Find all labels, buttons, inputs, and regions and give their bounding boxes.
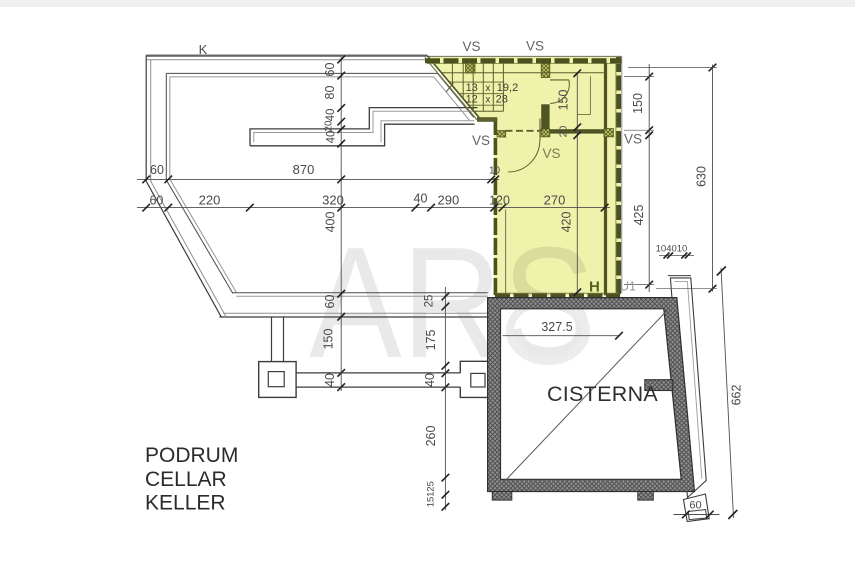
svg-text:25: 25 xyxy=(424,295,436,308)
svg-text:60: 60 xyxy=(323,295,337,309)
svg-text:220: 220 xyxy=(199,192,221,207)
svg-text:80: 80 xyxy=(323,86,337,100)
svg-text:150: 150 xyxy=(631,93,645,114)
svg-text:630: 630 xyxy=(695,166,709,187)
svg-text:60: 60 xyxy=(323,63,337,77)
svg-text:15: 15 xyxy=(426,497,437,508)
svg-text:VS: VS xyxy=(542,146,560,161)
svg-text:40: 40 xyxy=(423,373,437,387)
svg-text:175: 175 xyxy=(424,330,438,351)
svg-text:VS: VS xyxy=(472,133,490,148)
svg-text:400: 400 xyxy=(324,212,338,233)
svg-text:40: 40 xyxy=(323,373,337,387)
svg-text:870: 870 xyxy=(293,162,315,177)
svg-text:KELLER: KELLER xyxy=(145,492,226,515)
svg-text:H: H xyxy=(589,279,600,296)
svg-text:260: 260 xyxy=(424,426,438,447)
svg-text:U1: U1 xyxy=(620,280,636,294)
svg-text:28: 28 xyxy=(496,94,508,106)
svg-text:150: 150 xyxy=(557,90,571,111)
svg-text:CISTERNA: CISTERNA xyxy=(547,382,658,406)
svg-text:60: 60 xyxy=(150,163,164,177)
svg-text:290: 290 xyxy=(438,192,460,207)
svg-text:425: 425 xyxy=(632,205,646,226)
svg-text:60: 60 xyxy=(689,500,701,512)
svg-text:662: 662 xyxy=(730,385,744,406)
svg-text:12: 12 xyxy=(466,94,478,106)
svg-text:40: 40 xyxy=(414,191,428,205)
svg-text:VS: VS xyxy=(526,39,544,54)
svg-text:327.5: 327.5 xyxy=(541,320,572,334)
svg-text:150: 150 xyxy=(322,329,336,350)
svg-text:13: 13 xyxy=(466,82,478,94)
svg-text:VS: VS xyxy=(624,132,642,147)
svg-text:60: 60 xyxy=(149,193,163,207)
svg-text:120: 120 xyxy=(489,193,510,207)
svg-text:104010: 104010 xyxy=(656,244,688,255)
svg-text:x: x xyxy=(485,83,490,94)
svg-text:20: 20 xyxy=(324,120,335,132)
svg-text:x: x xyxy=(485,95,490,106)
svg-text:19,2: 19,2 xyxy=(497,82,518,94)
svg-text:270: 270 xyxy=(544,192,566,207)
svg-text:K: K xyxy=(199,42,208,57)
svg-text:125: 125 xyxy=(426,481,437,497)
svg-text:VS: VS xyxy=(462,39,480,54)
svg-text:PODRUM: PODRUM xyxy=(145,444,238,467)
svg-text:10: 10 xyxy=(489,166,501,177)
svg-text:40: 40 xyxy=(325,109,337,122)
svg-text:420: 420 xyxy=(560,212,574,233)
svg-text:40: 40 xyxy=(326,131,338,144)
svg-text:320: 320 xyxy=(322,192,344,207)
svg-text:CELLAR: CELLAR xyxy=(145,468,227,491)
svg-text:20: 20 xyxy=(558,126,570,138)
